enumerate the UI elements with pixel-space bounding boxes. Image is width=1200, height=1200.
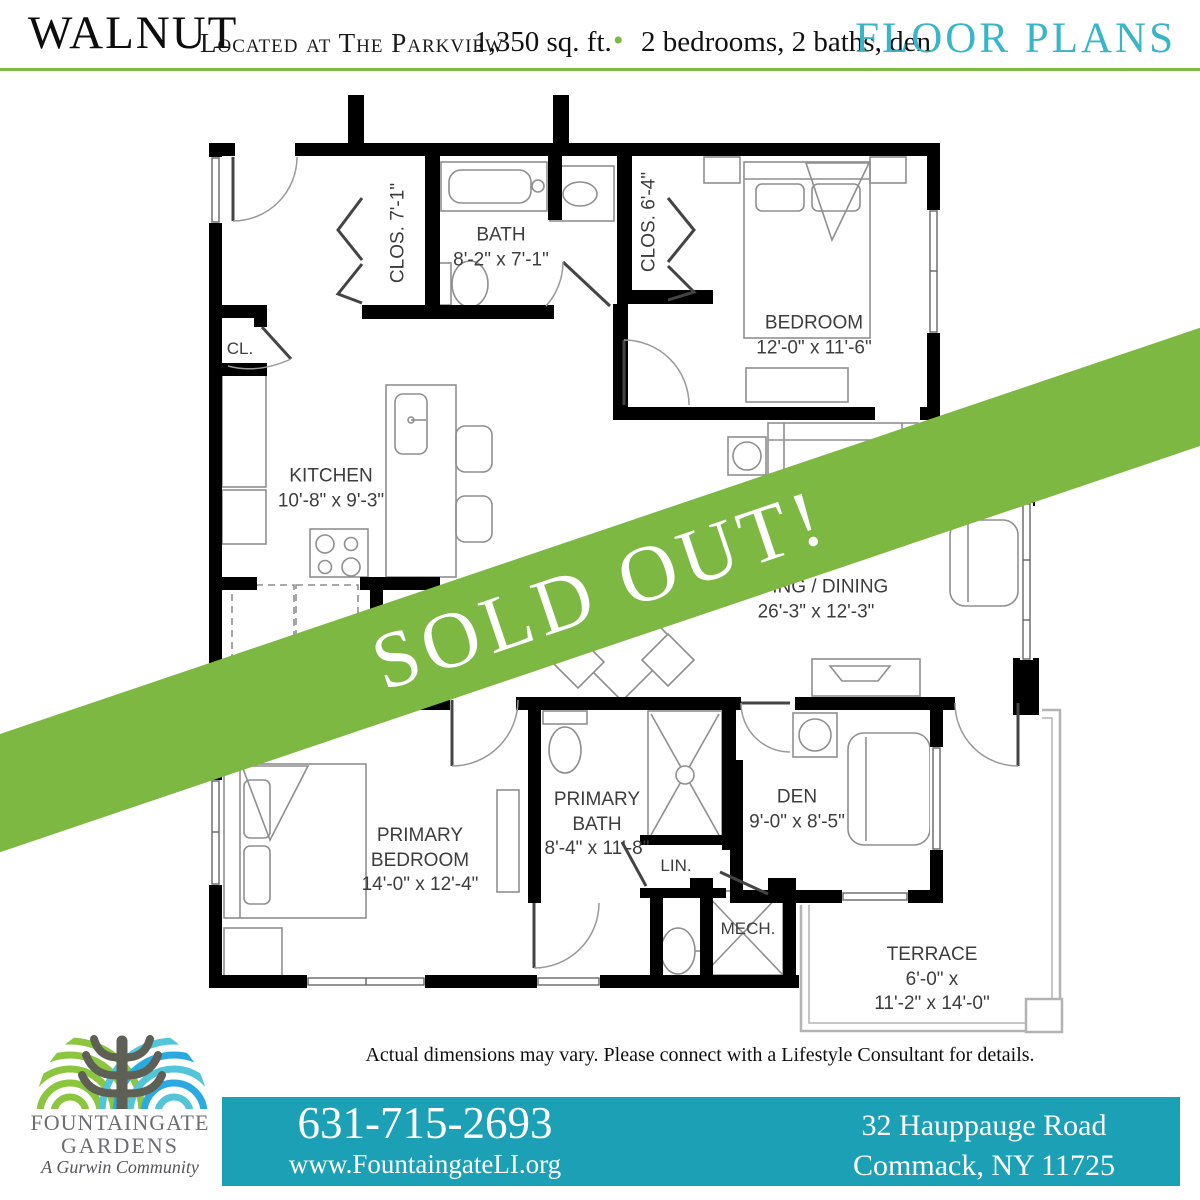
room-label-closet-2: CLOS. 6'-4": [638, 172, 663, 272]
address-line2: Commack, NY 11725: [816, 1146, 1152, 1186]
flyer-page: WALNUT Located at The Parkview 1,350 sq.…: [0, 0, 1200, 1200]
room-label-terrace: TERRACE6'-0" x 11'-2" x 14'-0": [874, 943, 989, 1017]
room-label-bath: BATH8'-2" x 7'-1": [453, 223, 549, 272]
phone-number: 631-715-2693: [250, 1097, 600, 1149]
website-url: www.FountaingateLI.org: [250, 1149, 600, 1180]
fountaingate-logo-icon: [36, 1020, 208, 1112]
room-label-primary-bath: PRIMARYBATH 8'-4" x 11'-8": [545, 788, 650, 862]
room-label-den: DEN9'-0" x 8'-5": [749, 785, 845, 834]
room-label-primary-bedroom: PRIMARYBEDROOM 14'-0" x 12'-4": [362, 824, 479, 898]
contact-bar: 631-715-2693 www.FountaingateLI.org 32 H…: [222, 1097, 1180, 1186]
logo-name-line2: GARDENS: [25, 1133, 215, 1159]
room-label-closet-1: CLOS. 7'-1": [387, 183, 412, 283]
room-label-kitchen: KITCHEN10'-8" x 9'-3": [278, 464, 384, 513]
disclaimer-text: Actual dimensions may vary. Please conne…: [300, 1044, 1100, 1067]
room-label-cl: CL.: [227, 338, 253, 360]
room-label-mech: MECH.: [721, 918, 776, 940]
address: 32 Hauppauge Road Commack, NY 11725: [816, 1106, 1152, 1185]
room-label-lin: LIN.: [660, 855, 691, 877]
address-line1: 32 Hauppauge Road: [816, 1106, 1152, 1146]
room-label-bedroom: BEDROOM12'-0" x 11'-6": [756, 311, 871, 360]
logo-tagline: A Gurwin Community: [25, 1157, 215, 1178]
